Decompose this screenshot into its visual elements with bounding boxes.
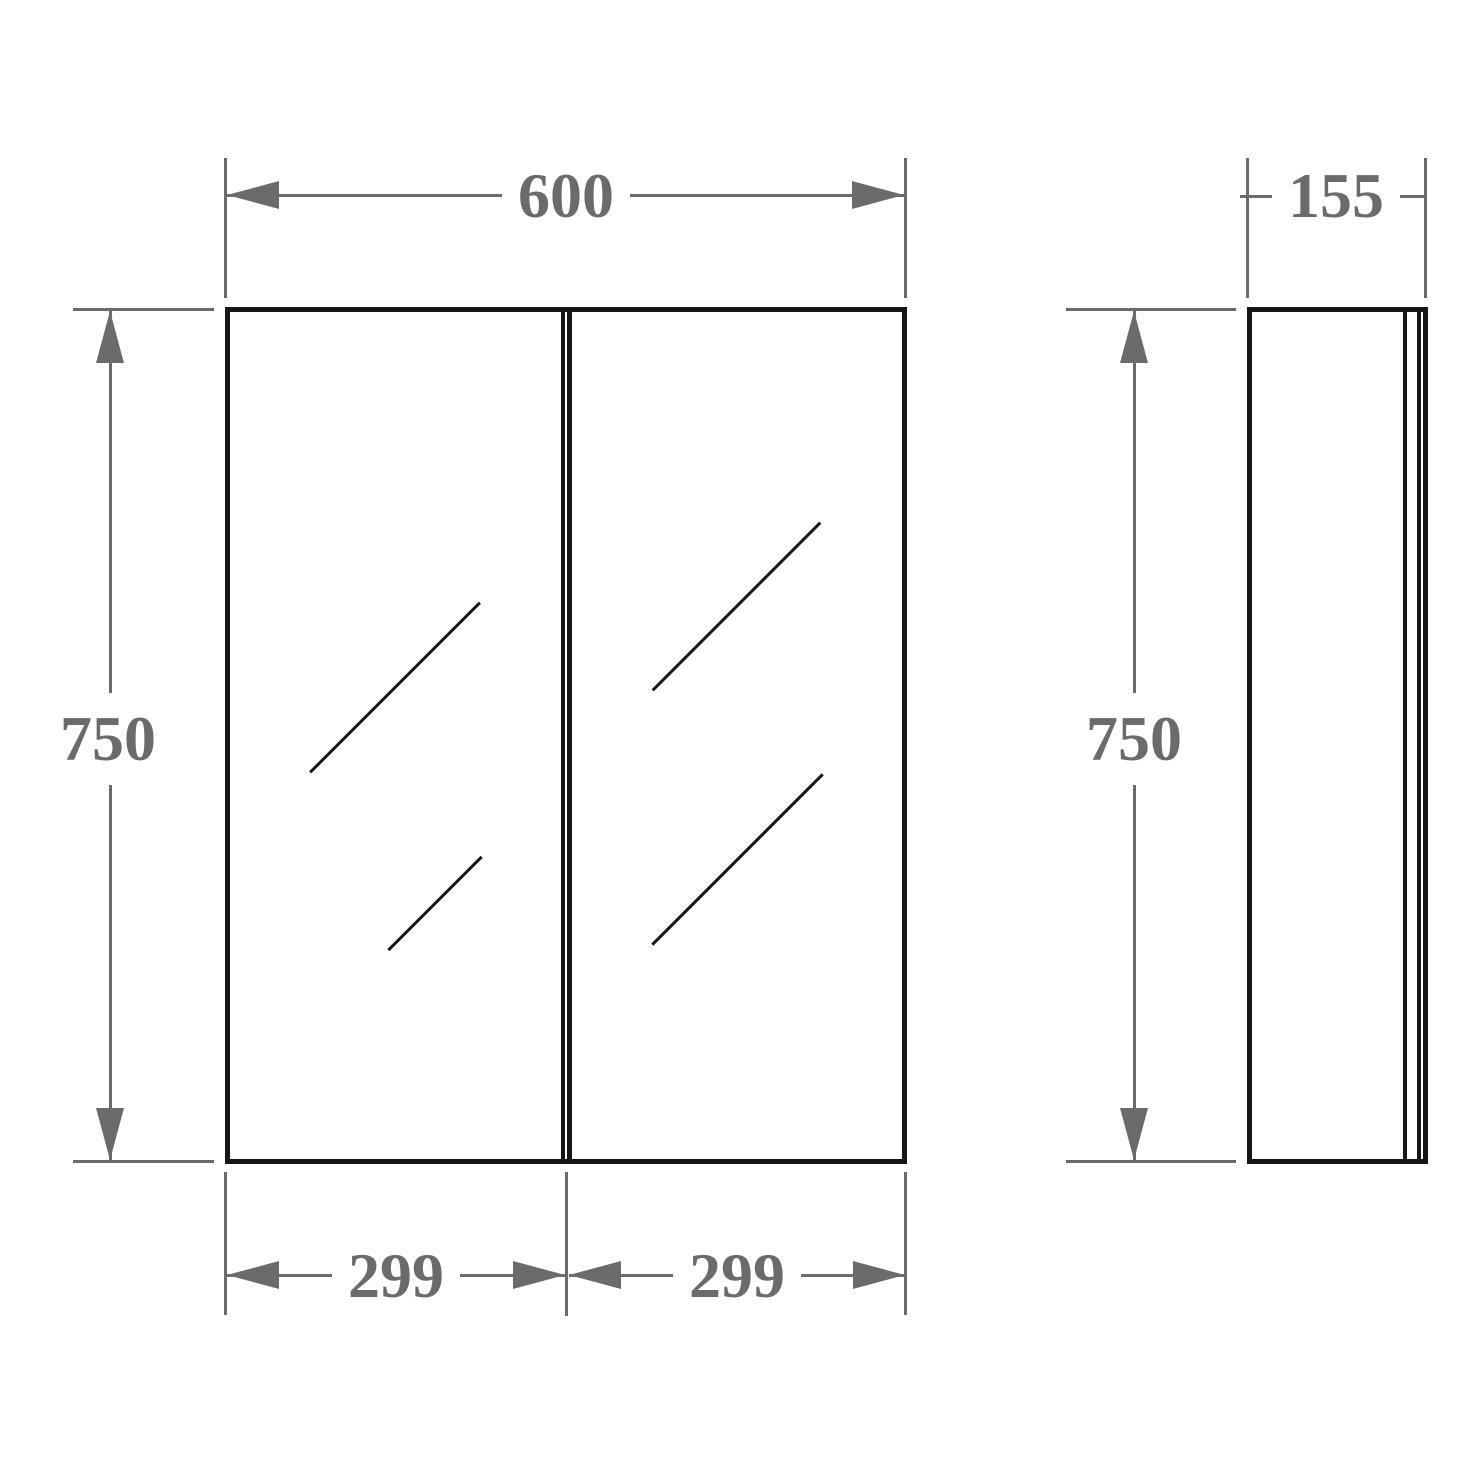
dim-front-height-arrow-top [96, 311, 124, 363]
right-door-mirror-glint-lower [651, 773, 824, 946]
left-door-mirror-glint-upper [309, 602, 481, 774]
side-panel-line-inner [1403, 312, 1407, 1159]
dim-front-width-arrow-left [227, 181, 279, 209]
dim-door-left-value: 299 [332, 1242, 460, 1310]
dim-front-height-ext-top [73, 308, 214, 311]
dim-side-height-ext-bottom [1066, 1160, 1236, 1163]
dim-front-height-ext-bottom [73, 1160, 214, 1163]
left-door-mirror-glint-lower [387, 856, 482, 951]
dim-side-depth-value: 155 [1272, 162, 1400, 230]
drawing-canvas: 600 750 299 299 155 [0, 0, 1473, 1474]
dim-front-height-arrow-bottom [96, 1108, 124, 1160]
door-divider-right-line [567, 312, 572, 1159]
front-left-edge [225, 307, 230, 1164]
dim-doors-ext-center [565, 1172, 568, 1316]
side-panel-line-outer [1417, 312, 1421, 1159]
side-back-edge [1247, 307, 1252, 1164]
dim-door-right-arrow-right [853, 1261, 905, 1289]
front-bottom-edge [225, 1159, 907, 1164]
dim-side-height-arrow-top [1120, 311, 1148, 363]
dim-side-depth-tick-right [1396, 195, 1427, 198]
dim-door-right-value: 299 [673, 1242, 801, 1310]
dim-front-width-arrow-right [852, 181, 904, 209]
dim-door-left-arrow-left [227, 1261, 279, 1289]
dim-front-width-ext-left [224, 158, 227, 298]
side-bottom-edge [1247, 1159, 1428, 1164]
door-divider-left-line [561, 312, 565, 1159]
dim-front-height-value: 750 [56, 693, 160, 785]
front-right-edge [902, 307, 907, 1164]
dim-door-right-arrow-left [569, 1261, 621, 1289]
dim-door-left-arrow-right [513, 1261, 565, 1289]
dim-side-height-value: 750 [1082, 693, 1186, 785]
dim-doors-ext-right [904, 1172, 907, 1315]
dim-doors-ext-left [224, 1172, 227, 1315]
dim-front-width-ext-right [904, 158, 907, 298]
dim-side-depth-tick-left [1240, 195, 1274, 198]
dim-front-width-value: 600 [502, 162, 630, 230]
dim-side-depth-ext-right [1424, 158, 1427, 298]
right-door-mirror-glint-upper [652, 522, 822, 692]
side-top-edge [1247, 307, 1428, 312]
front-top-edge [225, 307, 907, 312]
dim-side-depth-ext-left [1246, 158, 1249, 298]
dim-side-height-arrow-bottom [1120, 1108, 1148, 1160]
dim-side-height-ext-top [1066, 308, 1236, 311]
side-front-edge [1423, 307, 1428, 1164]
